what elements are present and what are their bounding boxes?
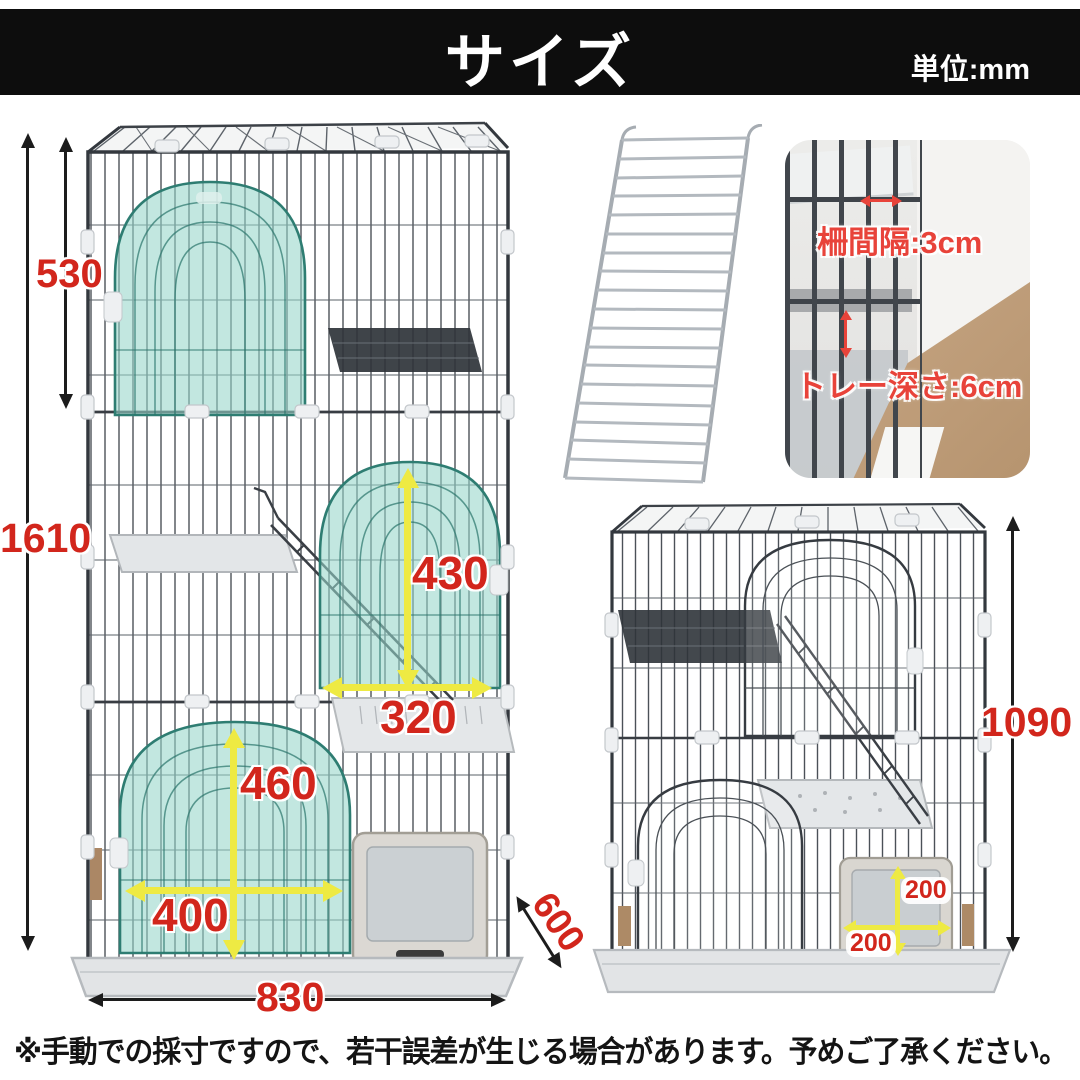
total-height-label: 1610 [0, 518, 91, 559]
upper-section-label: 530 [36, 254, 103, 294]
right-cage-top-door [745, 540, 923, 736]
detail-photo [785, 140, 1030, 478]
page-title: サイズ [445, 14, 635, 101]
right-cage-illustration [590, 498, 1020, 1000]
base-depth-label: 600 [526, 886, 592, 958]
flap-height-label: 200 [901, 877, 951, 904]
left-cage-top-door [104, 182, 305, 415]
right-cage-bottom-door [628, 780, 802, 954]
base-width-label: 830 [256, 977, 324, 1018]
flap-height-arrow [895, 877, 900, 945]
right-cage-height-label: 1090 [981, 702, 1072, 743]
bar-spacing-label: 柵間隔:3cm [817, 227, 982, 258]
tray-depth-label: トレー深さ:6cm [795, 371, 1022, 402]
right-cage-base [594, 950, 1010, 992]
middle-door-height-label: 430 [412, 550, 489, 596]
lower-door-width-label: 400 [152, 892, 229, 938]
bar-spacing-arrow [868, 199, 894, 202]
flap-width-label: 200 [846, 930, 896, 957]
left-cage-top-face [88, 123, 508, 152]
photo-cage-bars [785, 140, 922, 478]
unit-label: 単位:mm [911, 46, 1030, 88]
middle-door-width-arrow [340, 684, 474, 691]
ladder-illustration [556, 124, 806, 504]
disclaimer-text: ※手動での採寸ですので、若干誤差が生じる場合があります。予めご了承ください。 [14, 1027, 1067, 1071]
lower-door-height-arrow [230, 746, 237, 942]
middle-door-height-arrow [404, 486, 411, 672]
middle-door-width-label: 320 [380, 694, 457, 740]
tray-depth-arrow [844, 318, 847, 350]
lower-door-height-label: 460 [240, 760, 317, 806]
size-diagram-page: サイズ 単位:mm [0, 0, 1080, 1080]
